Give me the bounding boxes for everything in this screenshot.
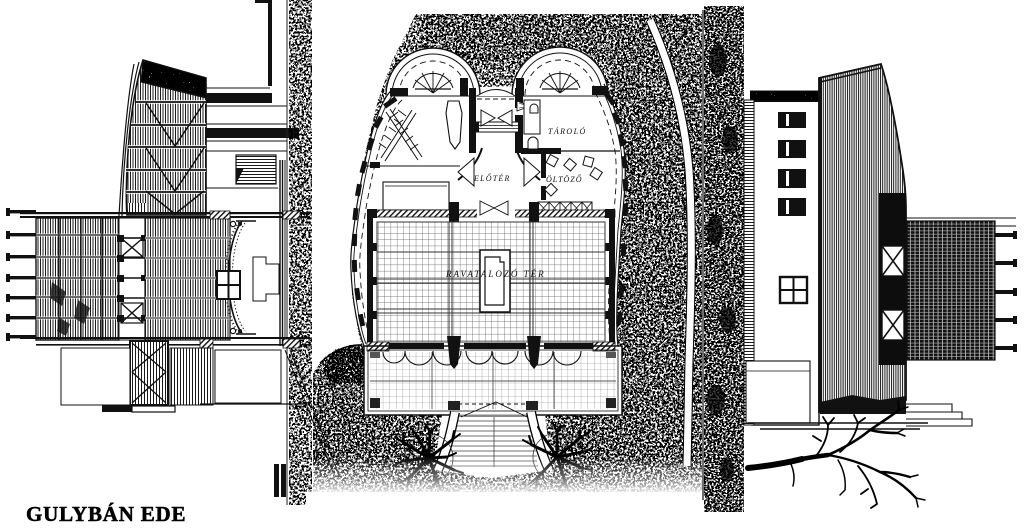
- svg-text:ELŐTÉR: ELŐTÉR: [473, 173, 511, 183]
- svg-text:TÁROLÓ: TÁROLÓ: [548, 126, 587, 136]
- svg-text:RAVATALOZÓ TÉR: RAVATALOZÓ TÉR: [445, 269, 546, 279]
- svg-text:ÖLTÖZŐ: ÖLTÖZŐ: [546, 174, 583, 184]
- svg-text:GULYBÁN EDE: GULYBÁN EDE: [26, 502, 186, 526]
